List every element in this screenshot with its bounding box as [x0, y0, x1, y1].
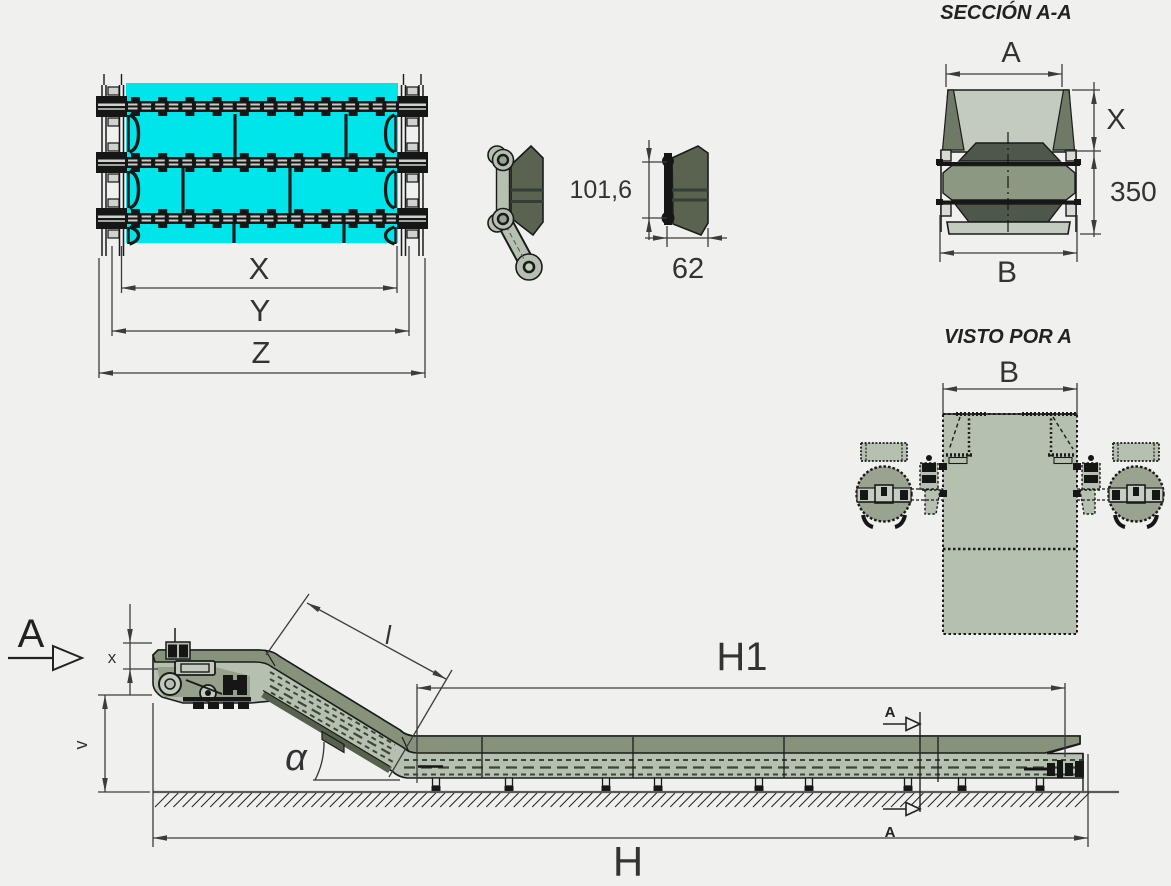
svg-text:H1: H1	[716, 635, 767, 679]
svg-text:101,6: 101,6	[569, 176, 632, 204]
svg-text:Z: Z	[252, 335, 271, 370]
svg-text:VISTO POR A: VISTO POR A	[944, 326, 1072, 348]
svg-text:X: X	[249, 251, 270, 286]
svg-text:H: H	[613, 838, 643, 885]
svg-text:X: X	[1106, 104, 1125, 136]
svg-text:Y: Y	[250, 293, 271, 328]
svg-text:B: B	[997, 256, 1017, 289]
svg-text:A: A	[18, 612, 45, 656]
svg-text:350: 350	[1110, 176, 1157, 207]
svg-text:A: A	[1001, 37, 1021, 69]
svg-text:SECCIÓN A-A: SECCIÓN A-A	[940, 0, 1071, 24]
svg-text:62: 62	[672, 253, 704, 285]
svg-text:x: x	[108, 648, 117, 667]
svg-text:α: α	[285, 737, 308, 779]
svg-text:v: v	[71, 741, 91, 750]
svg-text:B: B	[999, 356, 1019, 389]
svg-text:A: A	[885, 704, 896, 721]
